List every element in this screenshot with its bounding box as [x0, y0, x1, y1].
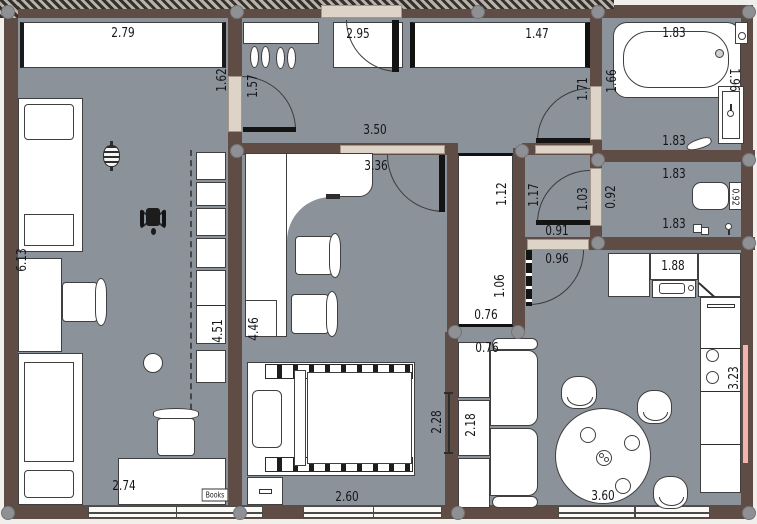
door-opening-bathroom	[590, 86, 602, 140]
shelf-divider	[197, 305, 225, 306]
dining-chair[interactable]	[653, 476, 688, 509]
dim-kitchen-col: 3.23	[726, 366, 742, 389]
dim-sofa-top: 0.76	[475, 340, 498, 356]
dim-cab-1: 1.12	[494, 182, 510, 205]
sofa-back-cushion[interactable]	[458, 458, 490, 508]
stool[interactable]	[143, 353, 163, 373]
centerpiece-dot	[604, 457, 609, 462]
office-chair-kids-1[interactable]	[62, 278, 108, 326]
bed-single-bottom[interactable]	[18, 353, 83, 505]
top-wall-hatch	[0, 0, 614, 9]
sofa-armrest	[492, 496, 538, 508]
stove-burner[interactable]	[706, 371, 719, 384]
dim-line	[448, 392, 450, 454]
wheelchair-wheel	[140, 210, 144, 227]
chair-seat	[295, 236, 333, 275]
chair-seat	[62, 282, 98, 322]
column-marker	[742, 506, 756, 520]
cabinet-column[interactable]	[458, 153, 513, 327]
door-leaf-kidsroom[interactable]	[243, 127, 296, 132]
wall-bath-wc	[590, 150, 755, 162]
shelf-unit[interactable]	[196, 152, 226, 180]
dim-tub-top: 1.83	[662, 25, 685, 41]
shoe	[287, 47, 296, 69]
dining-chair[interactable]	[561, 376, 597, 409]
shelf-unit[interactable]	[196, 182, 226, 206]
column-marker	[591, 153, 605, 167]
bed-mattress	[307, 372, 412, 464]
wc-bin	[701, 227, 709, 235]
passage-hall-vestibule	[535, 145, 593, 154]
stove-burner[interactable]	[706, 349, 719, 362]
nightstand[interactable]	[247, 477, 283, 505]
dim-kitchen-top: 1.88	[661, 258, 684, 274]
desk-handle	[326, 194, 340, 199]
column-marker	[1, 506, 15, 520]
window-living	[558, 506, 710, 518]
sofa-seat[interactable]	[490, 428, 538, 496]
dim-cab-2: 1.06	[492, 274, 508, 297]
radiator-icon	[103, 145, 120, 167]
sink-basin	[659, 283, 685, 294]
books-label: Books	[202, 489, 229, 502]
dim-vestdoor: 0.96	[545, 251, 568, 267]
column-marker	[742, 236, 756, 250]
column-marker	[742, 5, 756, 19]
kitchen-counter-corner[interactable]	[698, 253, 741, 297]
dim-door1-left: 1.62	[214, 68, 230, 91]
dim-entry: 2.95	[346, 26, 369, 42]
pillow	[24, 470, 74, 498]
dim-living: 3.60	[591, 488, 614, 504]
dim-sofa-len: 2.18	[463, 413, 479, 436]
bath-corner-shelf	[735, 22, 748, 44]
radiator-stem	[110, 141, 113, 146]
blanket	[24, 362, 74, 462]
window-mullion	[176, 507, 178, 517]
shelf-unit[interactable]	[196, 238, 226, 268]
column-marker	[511, 325, 525, 339]
shelf-unit[interactable]	[196, 350, 226, 383]
sofa-armrest	[492, 338, 538, 350]
shoe	[250, 46, 259, 68]
toilet-bowl[interactable]	[692, 182, 729, 210]
dim-desk2: 2.74	[112, 478, 135, 494]
chair-seat	[157, 418, 195, 456]
bed-pillow	[252, 390, 282, 448]
dim-office-h: 4.46	[246, 317, 262, 340]
dim-bathdoor-bath: 1.66	[604, 69, 620, 92]
dim-tick	[444, 452, 453, 454]
column-marker	[233, 506, 247, 520]
chair-curve	[567, 397, 593, 406]
dining-chair[interactable]	[637, 390, 672, 424]
dim-vest-2: 1.03	[575, 187, 591, 210]
plate	[615, 478, 631, 494]
chair-curve	[643, 412, 668, 421]
dim-bath-right: 1.96	[726, 68, 742, 91]
vanity-spout	[730, 104, 732, 111]
column-marker	[230, 144, 244, 158]
dim-wcdoor: 0.91	[545, 223, 568, 239]
chair-back	[329, 233, 341, 278]
blanket	[24, 214, 74, 246]
kitchen-sink-unit[interactable]	[652, 280, 696, 298]
vanity-faucet	[727, 110, 734, 117]
door-leaf-entrance[interactable]	[392, 20, 399, 72]
office-chair-kids-2[interactable]	[153, 408, 199, 458]
pillow	[24, 104, 74, 140]
dim-bed-w: 2.60	[335, 489, 358, 505]
centerpiece-dot	[599, 453, 604, 458]
column-marker	[591, 5, 605, 19]
office-chair-2[interactable]	[291, 291, 339, 337]
sofa-seat[interactable]	[490, 350, 538, 426]
chair-back	[326, 291, 338, 337]
column-marker	[451, 506, 465, 520]
door-opening-vestibule	[527, 239, 589, 250]
window-bedroom	[303, 506, 442, 518]
dim-bath-bottom: 1.83	[662, 133, 685, 149]
dim-cab-3: 0.76	[474, 307, 497, 323]
shoe	[276, 47, 285, 69]
column-marker	[230, 5, 244, 19]
radiator-stem	[110, 166, 113, 171]
dim-wc-top: 1.83	[662, 166, 685, 182]
dim-tick	[444, 392, 453, 394]
dim-wardrobe-b: 1.47	[525, 26, 548, 42]
entrance-sill	[321, 5, 402, 18]
dim-wardrobe-a: 2.79	[111, 25, 134, 41]
wheelchair-wheel	[162, 210, 166, 227]
bed-headboard	[294, 370, 306, 466]
dim-vest-1: 1.17	[526, 183, 542, 206]
wheelchair-seat	[146, 208, 160, 226]
bed-single-top[interactable]	[18, 98, 83, 252]
column-marker	[591, 236, 605, 250]
floor-plan: 2.791.621.572.951.473.503.361.711.661.83…	[0, 0, 757, 524]
toilet-brush	[725, 223, 732, 230]
dim-wc-tank: 0.92	[730, 188, 741, 205]
door-opening-kidsroom	[228, 76, 242, 132]
plate	[624, 435, 640, 451]
chair-seat	[291, 294, 329, 334]
shoe	[261, 46, 270, 68]
kitchen-counter-left[interactable]	[608, 253, 650, 297]
wardrobe-hall[interactable]	[410, 22, 590, 68]
dim-hall: 3.50	[363, 122, 386, 138]
column-marker	[1, 5, 15, 19]
window-mullion	[373, 507, 375, 517]
door-leaf-office[interactable]	[439, 155, 445, 212]
wall-cabinet-left	[447, 148, 458, 332]
wall-bedroom-living	[445, 332, 458, 505]
counter-divider	[701, 391, 740, 392]
dim-kidsroom-h: 6.13	[14, 248, 30, 271]
office-chair-1[interactable]	[295, 233, 342, 278]
plate	[580, 427, 596, 443]
shelf-partition-line	[190, 150, 192, 440]
hall-console[interactable]	[243, 22, 319, 44]
column-marker	[515, 144, 529, 158]
heater-strip	[743, 345, 748, 463]
counter-divider	[701, 348, 740, 349]
bath-vanity[interactable]	[718, 86, 744, 144]
desk-kids-left[interactable]	[18, 258, 62, 352]
dim-bathdoor-hall: 1.71	[575, 77, 591, 100]
column-marker	[742, 153, 756, 167]
column-marker	[471, 5, 485, 19]
centerpiece	[596, 450, 612, 466]
door-leaf-bathroom[interactable]	[536, 138, 590, 143]
wheelchair-icon	[138, 203, 168, 235]
column-marker	[448, 325, 462, 339]
shelf-dot	[738, 32, 746, 40]
sink-faucet	[688, 285, 694, 291]
dim-bed-h: 2.28	[429, 410, 445, 433]
counter-divider	[701, 444, 740, 445]
dim-wc-left: 0.92	[603, 185, 619, 208]
wheelchair-caster	[151, 228, 156, 235]
window-mullion	[634, 507, 636, 517]
brush-stem	[728, 230, 730, 235]
dim-shelfwall: 4.51	[210, 319, 226, 342]
dim-office-w: 3.36	[364, 158, 387, 174]
bathtub-drain	[715, 49, 724, 58]
door-leaf-vestibule[interactable]	[526, 250, 532, 306]
shelf-unit[interactable]	[196, 208, 226, 236]
chair-curve	[659, 497, 684, 506]
dim-door1-right: 1.57	[245, 74, 261, 97]
drawer-handle	[259, 489, 272, 494]
kitchen-counter-column[interactable]	[700, 297, 741, 493]
dim-wc-bottom: 1.83	[662, 216, 685, 232]
door-opening-wc	[590, 168, 602, 226]
oven-handle	[707, 304, 735, 308]
chair-back	[95, 278, 107, 326]
